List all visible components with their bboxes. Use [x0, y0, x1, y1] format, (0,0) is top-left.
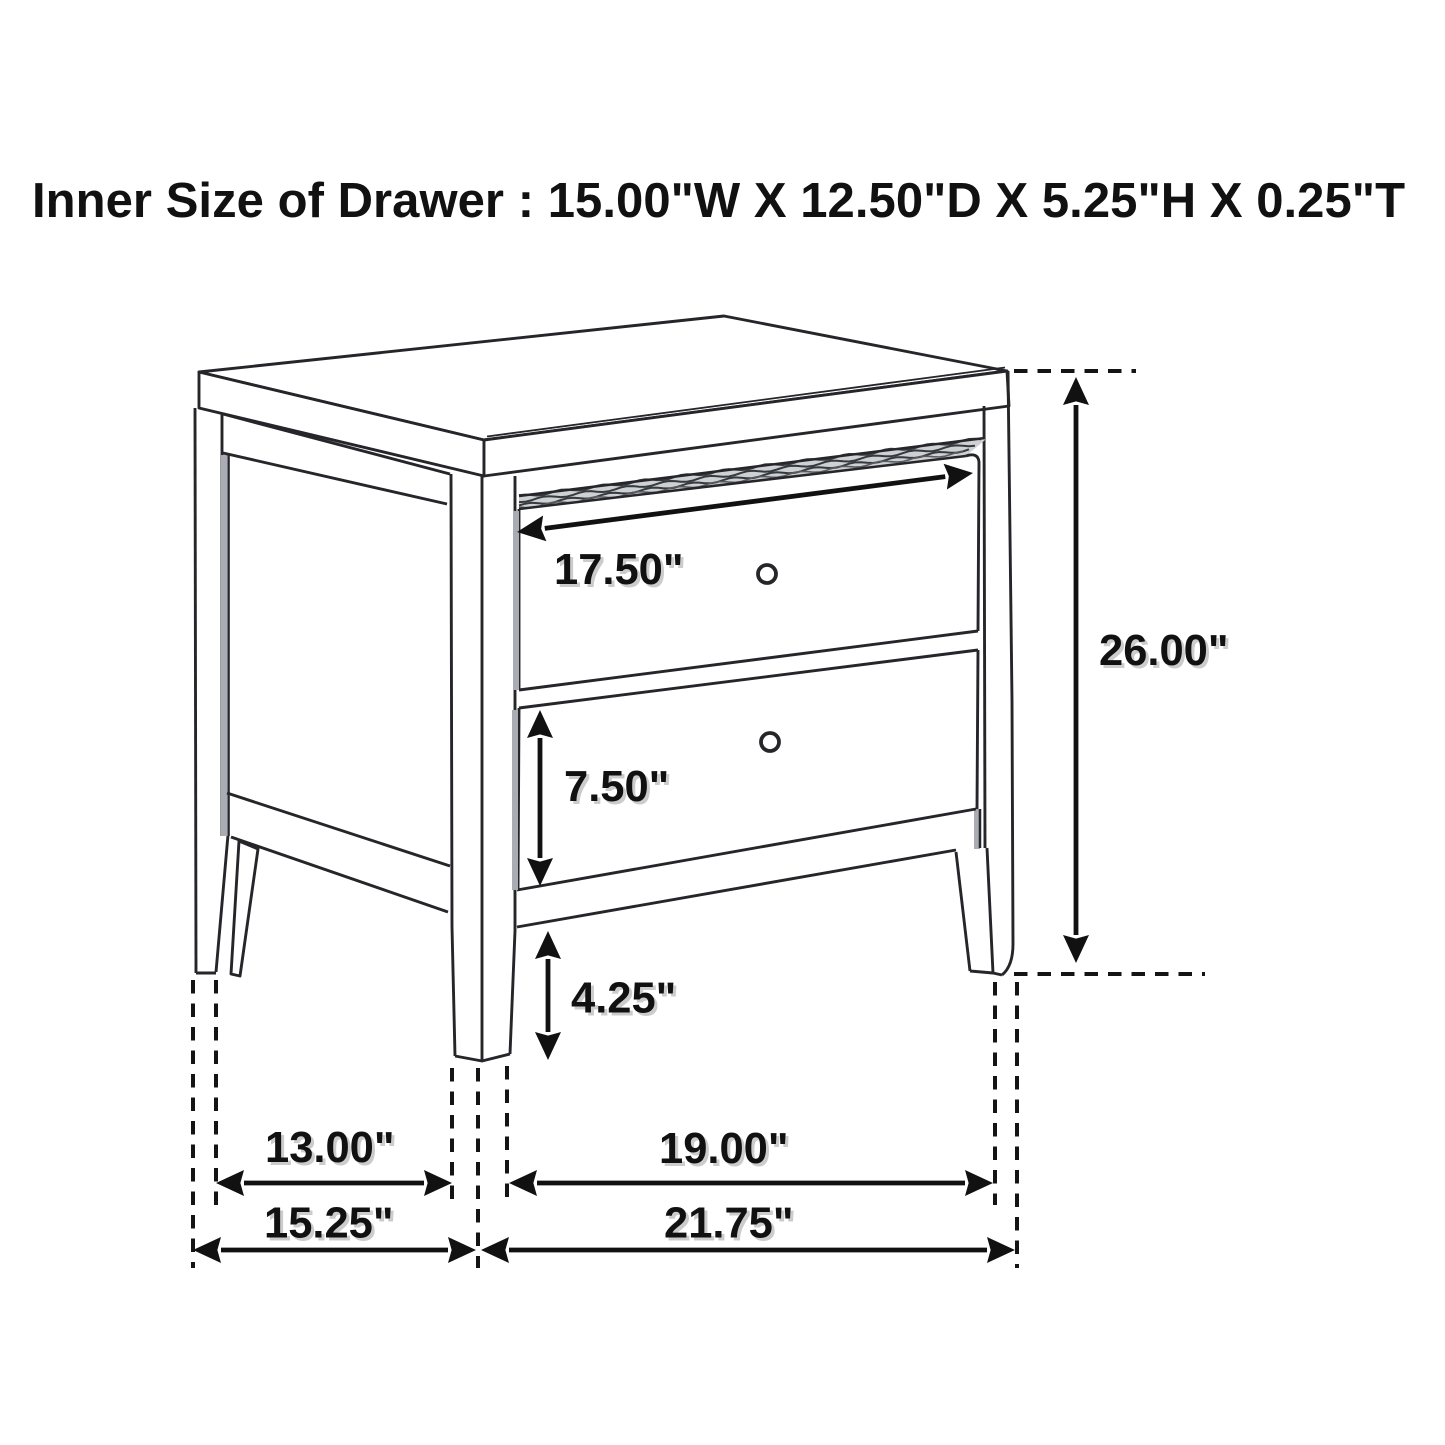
- svg-text:17.50": 17.50": [554, 546, 683, 594]
- svg-text:21.75": 21.75": [664, 1200, 793, 1248]
- svg-text:4.25": 4.25": [571, 975, 676, 1023]
- svg-text:Inner Size of Drawer : 15.00"W: Inner Size of Drawer : 15.00"W X 12.50"D…: [32, 174, 1405, 228]
- svg-text:26.00": 26.00": [1099, 627, 1228, 675]
- svg-text:19.00": 19.00": [659, 1125, 788, 1173]
- svg-text:13.00": 13.00": [265, 1124, 394, 1172]
- svg-text:15.25": 15.25": [264, 1200, 393, 1248]
- svg-text:7.50": 7.50": [564, 763, 669, 811]
